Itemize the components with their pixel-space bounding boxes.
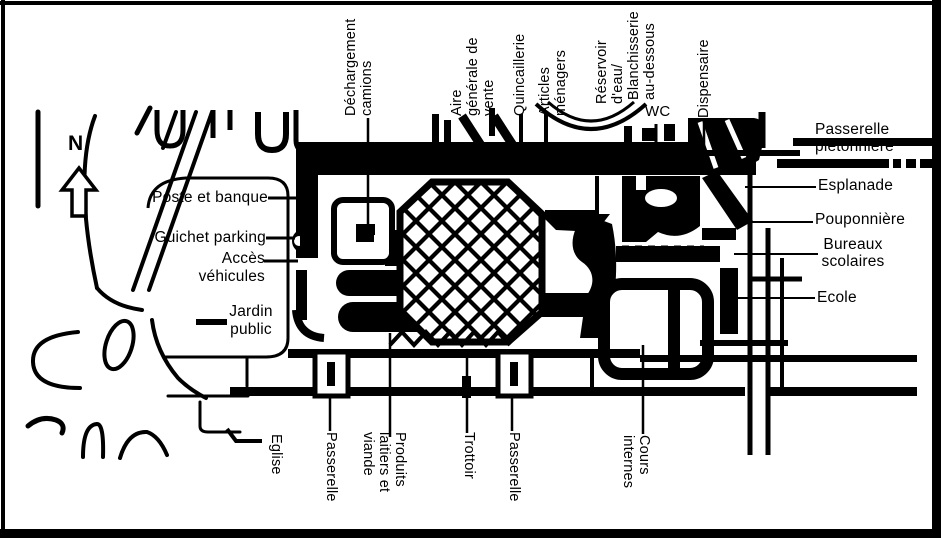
label-poste-et-banque: Poste et banque [144, 189, 268, 206]
label-eglise: Eglise [268, 434, 284, 475]
label-quincaillerie: Quincaillerie [512, 34, 528, 116]
label-acces-vehicules: Accès véhicules [180, 250, 265, 286]
compass-north-label: N [68, 136, 83, 152]
site-plan: N Déchargement camions Aire générale de … [0, 0, 941, 538]
label-passerelle-ouest: Passerelle [323, 432, 339, 502]
label-reservoir-eau: Réservoir d'eau/ [594, 40, 626, 104]
label-aire-generale-de-vente: Aire générale de vente [449, 37, 497, 116]
label-cours-internes: Cours internes [620, 435, 652, 488]
label-esplanade: Esplanade [818, 177, 893, 194]
label-jardin-public: Jardin public [222, 303, 280, 339]
label-blanchisserie-au-dessous: Blanchisserie au-dessous [626, 11, 658, 100]
guichet-kiosk [292, 229, 316, 253]
label-pouponniere: Pouponnière [815, 211, 905, 228]
label-wc: WC [645, 104, 670, 120]
label-passerelle-est: Passerelle [506, 432, 522, 502]
label-guichet-parking: Guichet parking [148, 229, 266, 246]
pouponniere-building [622, 176, 700, 242]
label-articles-menagers: Articles ménagers [537, 50, 569, 116]
market-southwest-corner [296, 310, 324, 338]
label-produits-laitiers-viande: Produits laitiers et viande [360, 432, 408, 492]
label-passerelle-pietonniere: Passerelle piétonnière [815, 121, 894, 155]
label-ecole: Ecole [817, 289, 857, 306]
label-dispensaire: Dispensaire [696, 39, 712, 118]
label-trottoir: Trottoir [461, 432, 477, 479]
market-hall-roof [400, 182, 542, 342]
label-dechargement-camions: Déchargement camions [343, 18, 375, 116]
north-arrow-icon [62, 168, 96, 216]
label-bureaux-scolaires: Bureaux scolaires [818, 236, 888, 270]
